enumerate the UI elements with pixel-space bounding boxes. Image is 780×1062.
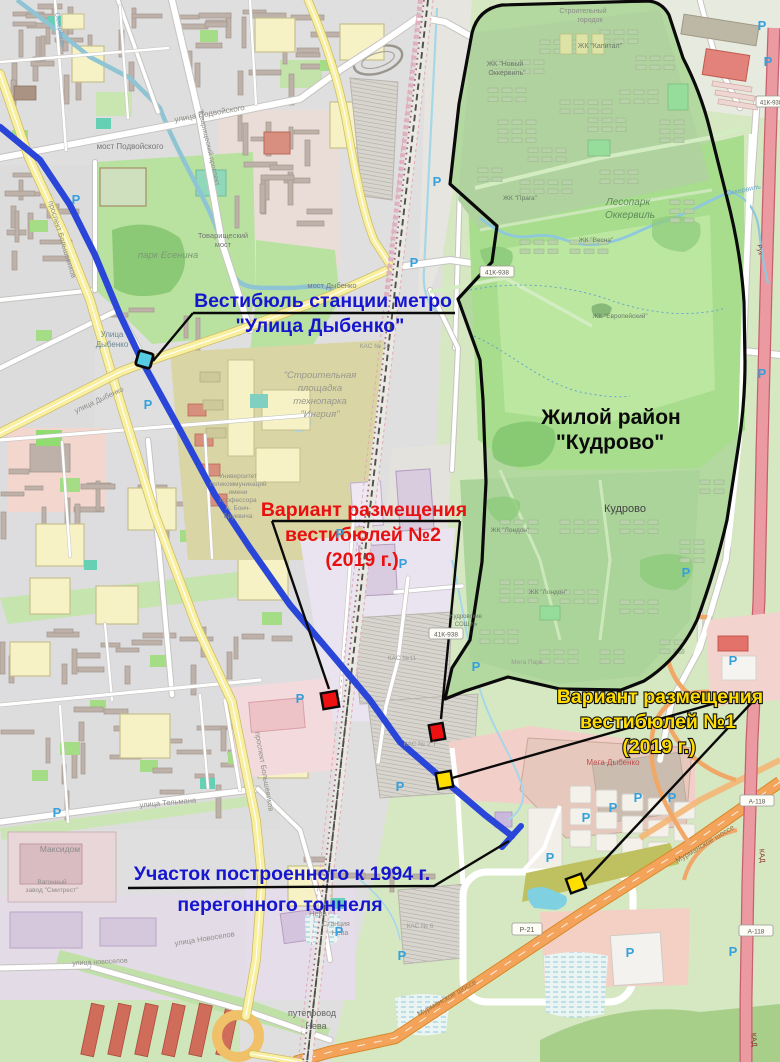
svg-text:41К-938: 41К-938	[760, 101, 780, 107]
svg-text:телекоммуникаций: телекоммуникаций	[209, 480, 267, 488]
svg-text:Р: Р	[758, 18, 767, 33]
svg-text:Вагонный: Вагонный	[37, 878, 67, 886]
svg-text:мост Дыбенко: мост Дыбенко	[307, 281, 356, 290]
svg-text:Р: Р	[53, 805, 62, 820]
svg-text:Р: Р	[399, 556, 408, 571]
svg-text:Р: Р	[729, 944, 738, 959]
svg-text:41К-938: 41К-938	[434, 632, 458, 639]
svg-text:КАС № 10: КАС № 10	[360, 343, 391, 350]
svg-text:вестибюлей №2: вестибюлей №2	[285, 524, 441, 546]
svg-text:технопарка: технопарка	[293, 396, 347, 407]
svg-text:профессора: профессора	[219, 497, 257, 504]
svg-text:А-118: А-118	[748, 929, 765, 936]
svg-text:Оккервиль": Оккервиль"	[488, 70, 526, 77]
svg-text:мост: мост	[215, 240, 232, 249]
svg-text:Р: Р	[144, 397, 153, 412]
svg-text:"Ингрия": "Ингрия"	[300, 409, 340, 420]
svg-text:Р: Р	[472, 659, 481, 674]
svg-text:Р: Р	[410, 255, 419, 270]
svg-text:Р: Р	[433, 174, 442, 189]
svg-text:Р: Р	[396, 779, 405, 794]
svg-text:Р: Р	[634, 790, 643, 805]
svg-text:путепровод: путепровод	[288, 1008, 337, 1018]
svg-text:(2019 г.): (2019 г.)	[325, 549, 398, 571]
svg-text:ЖК "Прага": ЖК "Прага"	[503, 195, 538, 202]
svg-text:вестибюлей №1: вестибюлей №1	[580, 711, 736, 733]
svg-text:Мега Парк: Мега Парк	[511, 659, 543, 666]
svg-text:Вариант размещения: Вариант размещения	[557, 686, 763, 708]
svg-text:Р: Р	[682, 565, 691, 580]
svg-text:ЖК "Европейский": ЖК "Европейский"	[592, 312, 648, 320]
svg-text:Товарищеский: Товарищеский	[198, 231, 248, 240]
svg-text:Р-21: Р-21	[520, 927, 535, 934]
svg-text:ЖК "Капитал": ЖК "Капитал"	[578, 43, 623, 50]
svg-text:Р: Р	[729, 653, 738, 668]
svg-text:парк Есенина: парк Есенина	[138, 250, 198, 261]
svg-text:Улица: Улица	[101, 330, 124, 339]
svg-text:Р: Р	[758, 366, 767, 381]
svg-text:Вестибюль станции метро: Вестибюль станции метро	[194, 290, 452, 312]
svg-text:Максидом: Максидом	[40, 844, 80, 854]
svg-text:Вариант размещения: Вариант размещения	[261, 499, 467, 521]
svg-text:перегонного тоннеля: перегонного тоннеля	[177, 894, 382, 916]
svg-text:Дыбенко: Дыбенко	[96, 340, 129, 349]
svg-text:КАД: КАД	[749, 1033, 757, 1048]
svg-text:СОШ №: СОШ №	[455, 621, 477, 628]
svg-text:Университет: Университет	[219, 473, 257, 480]
svg-text:Мега Дыбенко: Мега Дыбенко	[586, 758, 640, 767]
svg-text:мост Подвойского: мост Подвойского	[97, 142, 164, 151]
svg-text:А-118: А-118	[749, 799, 766, 806]
svg-text:имени: имени	[229, 489, 248, 496]
svg-text:41К-938: 41К-938	[485, 270, 509, 277]
svg-text:Лесопарк: Лесопарк	[605, 197, 651, 208]
svg-text:КАС № 6: КАС № 6	[407, 923, 434, 930]
svg-text:площадка: площадка	[298, 383, 342, 394]
svg-text:Р: Р	[582, 810, 591, 825]
svg-text:Р: Р	[609, 800, 618, 815]
svg-text:Нева: Нева	[305, 1021, 326, 1031]
svg-text:Р: Р	[626, 945, 635, 960]
svg-text:Р: Р	[296, 691, 305, 706]
svg-text:А. Бонч-: А. Бонч-	[226, 505, 251, 512]
svg-text:ЖК "Новый: ЖК "Новый	[487, 60, 524, 68]
svg-text:завод "Смитрест": завод "Смитрест"	[26, 887, 80, 894]
svg-text:Р: Р	[764, 54, 773, 69]
svg-text:(2019 г.): (2019 г.)	[622, 736, 695, 758]
svg-text:Жилой район: Жилой район	[540, 406, 680, 429]
svg-text:ЖК "Лондон": ЖК "Лондон"	[491, 527, 530, 534]
svg-text:Кудровские: Кудровские	[450, 614, 483, 620]
svg-text:Кудрово: Кудрово	[604, 503, 646, 515]
svg-text:ЖК "Веснa": ЖК "Веснa"	[579, 237, 614, 244]
svg-text:Р: Р	[72, 192, 81, 207]
svg-text:Бруевича: Бруевича	[224, 513, 253, 520]
svg-text:Р: Р	[668, 790, 677, 805]
svg-text:КАС №11: КАС №11	[388, 655, 417, 662]
svg-text:"Кудрово": "Кудрово"	[556, 431, 664, 454]
svg-text:Рух: Рух	[756, 244, 764, 256]
svg-text:ЖК "Лондон": ЖК "Лондон"	[529, 589, 568, 596]
svg-text:КАС № 2 Т: КАС № 2 Т	[404, 741, 437, 748]
svg-text:Р: Р	[335, 924, 344, 939]
svg-text:КАД: КАД	[757, 849, 765, 864]
svg-text:Участок построенного к 1994 г.: Участок построенного к 1994 г.	[134, 863, 430, 885]
svg-text:Р: Р	[336, 526, 345, 541]
svg-text:Р: Р	[398, 948, 407, 963]
svg-text:Нева: Нева	[309, 909, 327, 918]
svg-text:Р: Р	[546, 850, 555, 865]
svg-text:городок: городок	[578, 17, 604, 24]
svg-text:Строительный: Строительный	[559, 7, 606, 15]
svg-text:Оккервиль: Оккервиль	[605, 210, 655, 221]
svg-text:"Улица Дыбенко": "Улица Дыбенко"	[236, 315, 405, 337]
svg-text:"Строительная: "Строительная	[284, 370, 357, 381]
